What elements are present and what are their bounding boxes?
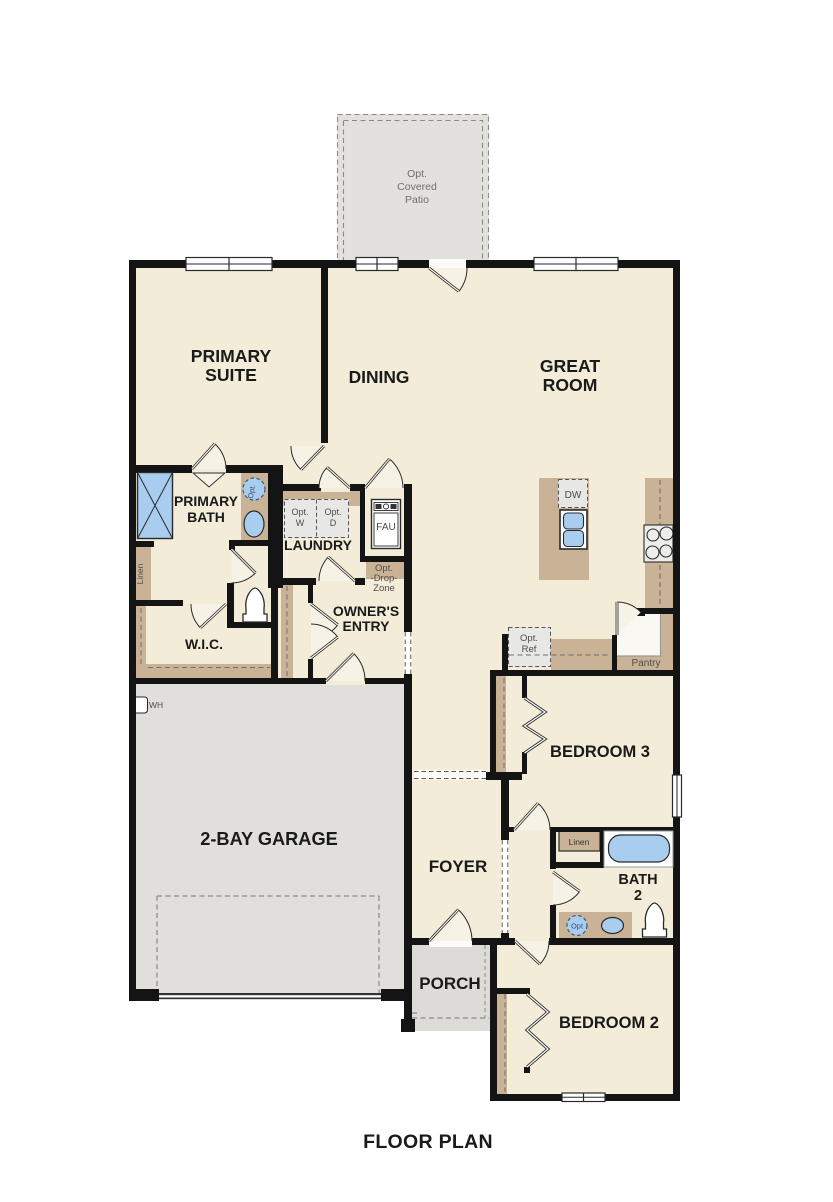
- svg-text:PRIMARY: PRIMARY: [174, 493, 239, 509]
- svg-text:BATH: BATH: [618, 872, 657, 888]
- svg-text:2-BAY GARAGE: 2-BAY GARAGE: [200, 829, 337, 849]
- svg-text:Opt.: Opt.: [407, 168, 427, 180]
- svg-text:FOYER: FOYER: [429, 857, 488, 876]
- svg-text:PORCH: PORCH: [419, 974, 480, 993]
- svg-text:Opt: Opt: [571, 922, 584, 931]
- svg-text:2: 2: [634, 888, 642, 904]
- svg-text:Covered: Covered: [397, 181, 437, 193]
- svg-text:GREAT: GREAT: [540, 356, 601, 376]
- svg-text:Ref: Ref: [522, 644, 537, 655]
- svg-text:PRIMARY: PRIMARY: [191, 346, 272, 366]
- svg-text:BEDROOM 3: BEDROOM 3: [550, 743, 650, 761]
- svg-text:DINING: DINING: [349, 367, 410, 387]
- svg-text:WH: WH: [149, 700, 163, 710]
- svg-text:BEDROOM 2: BEDROOM 2: [559, 1014, 659, 1032]
- svg-text:SUITE: SUITE: [205, 365, 257, 385]
- svg-text:Linen: Linen: [135, 563, 145, 584]
- svg-text:LAUNDRY: LAUNDRY: [284, 537, 353, 553]
- svg-text:ENTRY: ENTRY: [343, 618, 391, 634]
- svg-text:BATH: BATH: [187, 509, 225, 525]
- svg-text:W.I.C.: W.I.C.: [185, 636, 223, 652]
- svg-text:DW: DW: [565, 490, 582, 501]
- svg-text:FLOOR PLAN: FLOOR PLAN: [363, 1131, 493, 1153]
- svg-text:Opt.: Opt.: [520, 633, 538, 644]
- svg-text:Pantry: Pantry: [632, 658, 661, 669]
- svg-text:Opt.: Opt.: [324, 507, 341, 517]
- svg-text:Patio: Patio: [405, 194, 429, 206]
- svg-text:FAU: FAU: [376, 522, 395, 533]
- svg-text:W: W: [296, 518, 305, 528]
- svg-text:OWNER'S: OWNER'S: [333, 603, 399, 619]
- svg-text:Zone: Zone: [373, 583, 395, 594]
- svg-text:Linen: Linen: [569, 837, 590, 847]
- svg-text:D: D: [330, 518, 337, 528]
- svg-text:ROOM: ROOM: [543, 375, 598, 395]
- svg-text:Opt.: Opt.: [291, 507, 308, 517]
